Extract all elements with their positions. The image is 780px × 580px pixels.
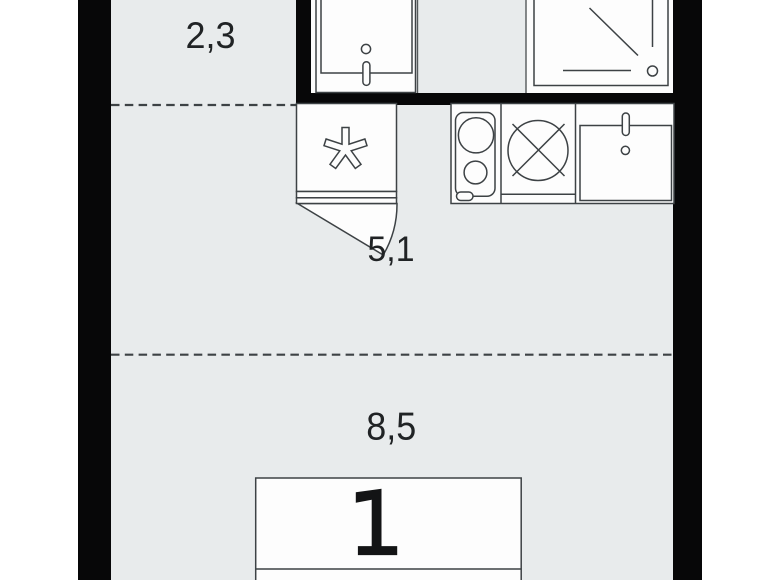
svg-text:5,1: 5,1	[368, 230, 415, 269]
svg-text:8,5: 8,5	[366, 406, 416, 449]
svg-text:2,3: 2,3	[186, 14, 236, 56]
